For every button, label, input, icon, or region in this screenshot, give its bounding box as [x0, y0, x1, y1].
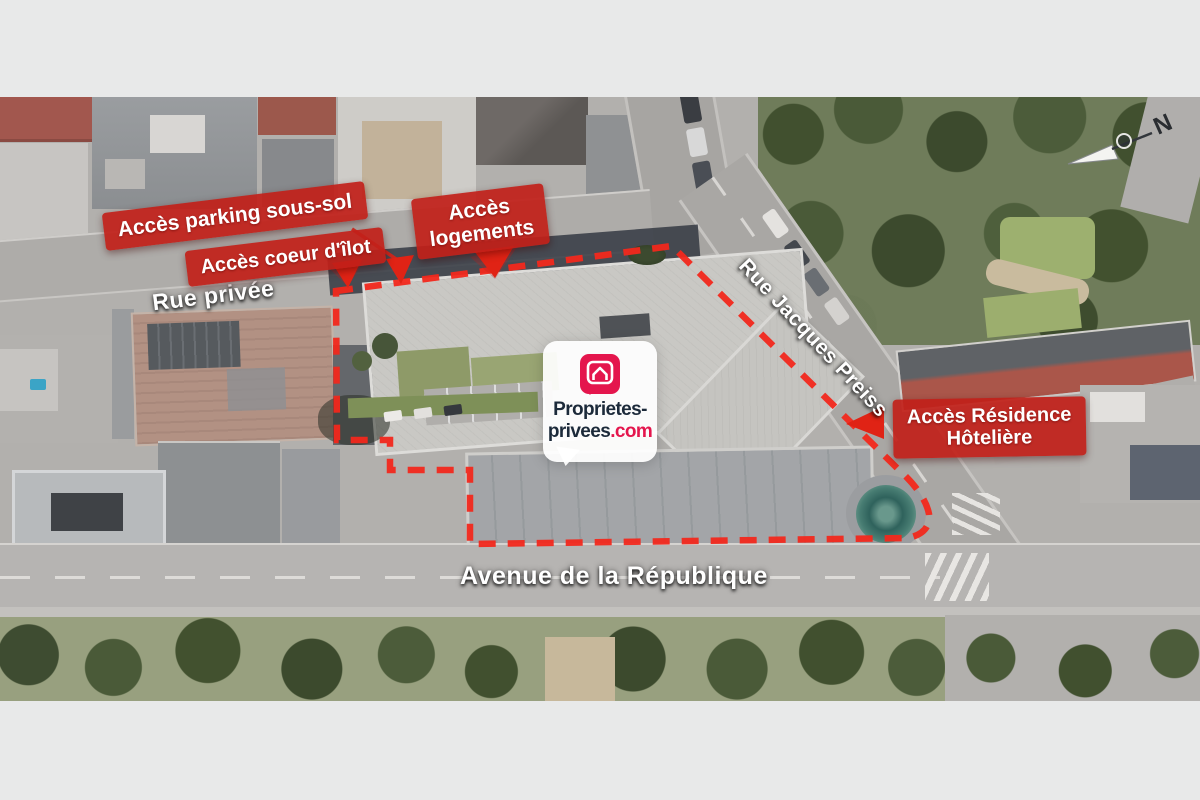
logo-text-privees: privees	[548, 421, 610, 442]
access-residence-label: Accès Résidence Hôtelière	[893, 396, 1087, 458]
access-residence-line1: Accès Résidence	[907, 404, 1072, 429]
access-residence-line2: Hôtelière	[946, 427, 1032, 450]
logo-text-line1: Proprietes-	[543, 400, 657, 421]
logo-text-com: .com	[610, 421, 652, 442]
brand-logo: Proprietes- privees.com	[543, 341, 657, 462]
north-arrow-icon: N	[1068, 109, 1176, 164]
logo-text-line2: privees.com	[543, 421, 657, 443]
avenue-republique-label: Avenue de la République	[460, 562, 768, 591]
access-logements-line2: logements	[428, 215, 535, 251]
site-plan-image: N Accès parking sous-sol Accès coeur d'î…	[0, 0, 1200, 800]
logo-house-icon	[580, 354, 620, 394]
north-label: N	[1149, 109, 1176, 141]
